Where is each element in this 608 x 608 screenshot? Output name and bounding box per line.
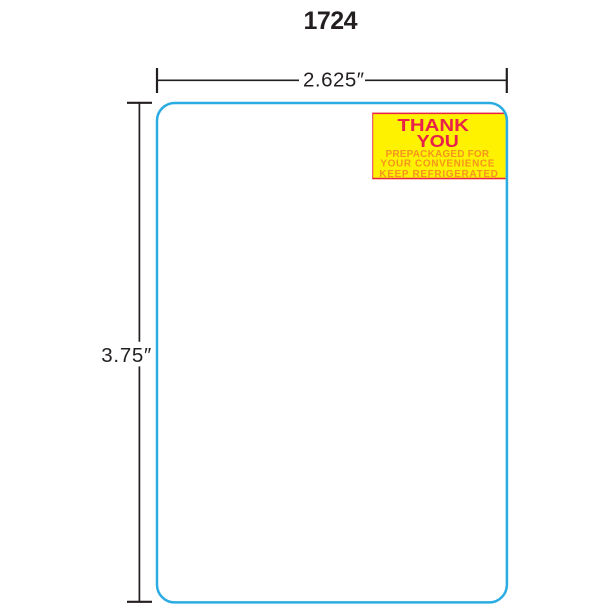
svg-text:3.75″: 3.75″ [101,344,151,367]
svg-text:KEEP REFRIGERATED: KEEP REFRIGERATED [379,169,498,180]
svg-text:2.625″: 2.625″ [303,69,364,92]
svg-text:1724: 1724 [304,7,358,35]
